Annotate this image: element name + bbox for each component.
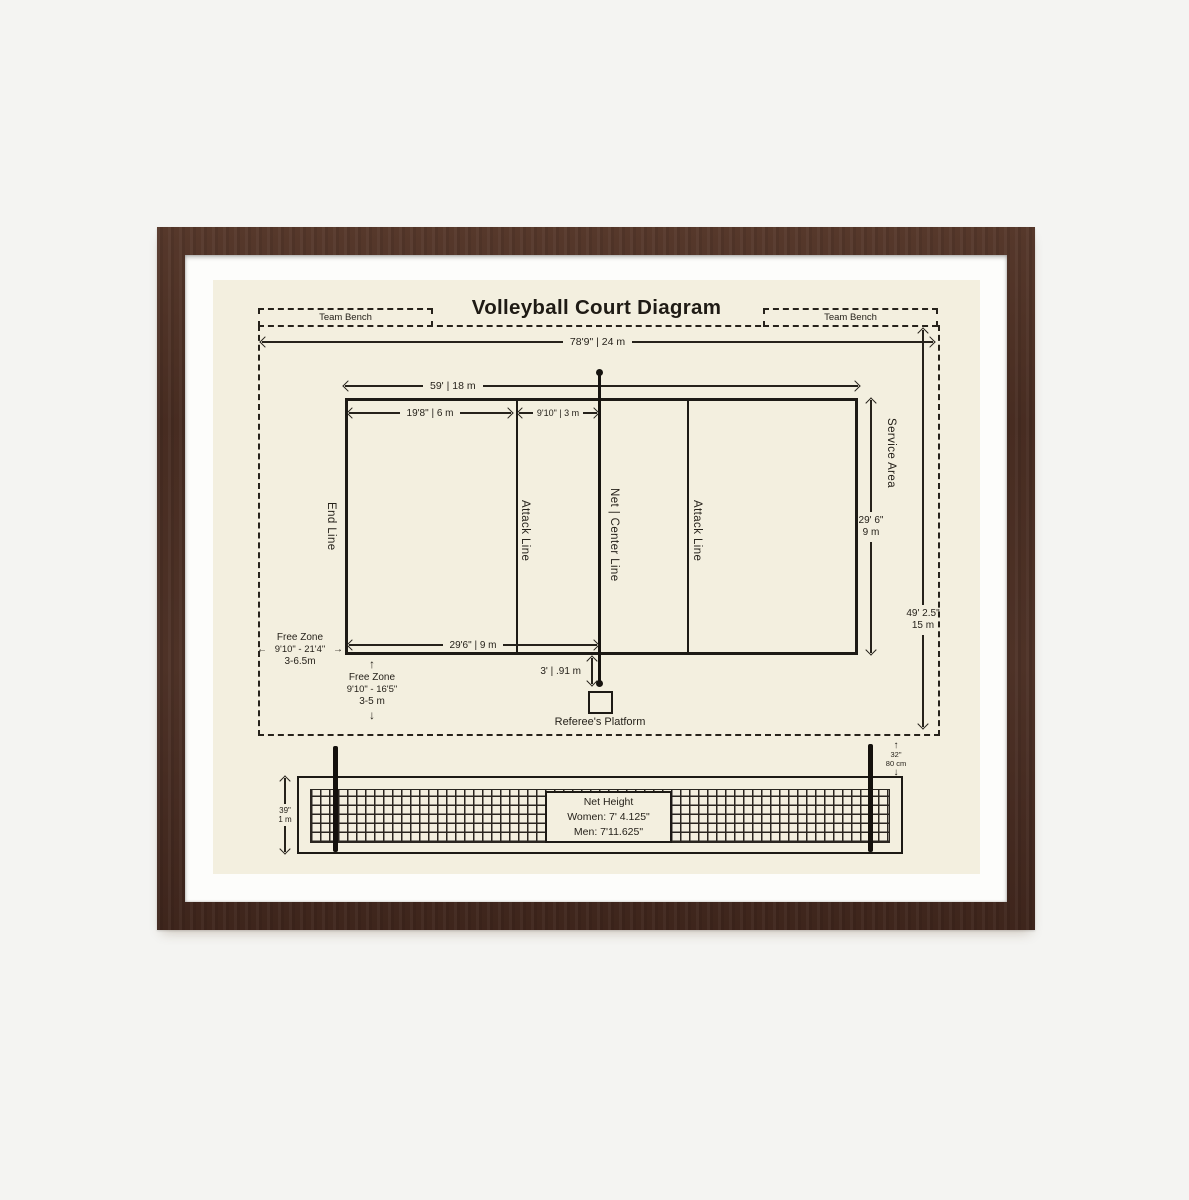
dim-court-width: 29' 6" 9 m (854, 400, 888, 653)
end-line-label: End Line (325, 502, 337, 551)
picture-frame: Volleyball Court Diagram Team Bench Team… (157, 227, 1035, 930)
arrow-down-icon: ↓ (875, 768, 917, 777)
dim-front-zone-label: 9'10" | 3 m (533, 408, 583, 418)
dim-line (483, 385, 858, 386)
net-height-men: Men: 7'11.625" (547, 825, 670, 840)
dim-attack-zone: 19'8" | 6 m (349, 407, 511, 419)
attack-line-right (687, 401, 689, 652)
free-zone-side-note: Free Zone ← 9'10" - 21'4" → 3-6.5m (257, 632, 343, 668)
dim-attack-zone-label: 19'8" | 6 m (400, 408, 461, 419)
net-center-line-label: Net | Center Line (608, 488, 620, 582)
dim-line (591, 658, 592, 684)
dim-court-width-ft: 29' 6" (859, 515, 884, 526)
net-pole-left (333, 746, 338, 852)
dim-court-width-label: 29' 6" 9 m (859, 512, 884, 542)
dim-line (284, 778, 285, 804)
referee-platform-square (588, 691, 613, 714)
net-pole-right (868, 744, 873, 852)
team-bench-right-label: Team Bench (824, 312, 877, 323)
dim-court-length: 59' | 18 m (345, 380, 858, 392)
dim-line (349, 644, 443, 645)
free-zone-end-title: Free Zone (332, 672, 412, 684)
court-outline (345, 398, 858, 655)
net-band-width-in: 32" (875, 750, 917, 759)
arrow-right-icon: → (333, 645, 343, 655)
dim-line (519, 412, 533, 413)
dim-half-court: 29'6" | 9 m (349, 639, 597, 651)
poster: Volleyball Court Diagram Team Bench Team… (213, 280, 980, 874)
referee-platform-label: Referee's Platform (512, 716, 688, 728)
dim-overall-length: 78'9" | 24 m (262, 336, 933, 348)
dim-line (262, 341, 563, 342)
arrow-up-icon: ↑ (875, 741, 917, 750)
dim-total-width-ft: 49' 2.5" (906, 608, 939, 619)
dim-line (922, 635, 923, 727)
team-bench-left-label: Team Bench (319, 312, 372, 323)
attack-line-left-label: Attack Line (519, 500, 531, 561)
net-height-title: Net Height (547, 795, 670, 810)
dim-platform-offset (587, 658, 597, 684)
dim-total-width: 49' 2.5" 15 m (906, 330, 940, 727)
dim-line (503, 644, 597, 645)
team-bench-right: Team Bench (763, 308, 938, 327)
dim-line (632, 341, 933, 342)
dim-line (583, 412, 597, 413)
dim-total-width-m: 15 m (912, 620, 934, 631)
team-bench-left: Team Bench (258, 308, 433, 327)
dim-net-post-height-label: 39" 1 m (278, 804, 291, 826)
dim-half-court-label: 29'6" | 9 m (443, 640, 504, 651)
dim-net-band-width: ↑ 32" 80 cm ↓ (875, 741, 917, 777)
arrow-left-icon: ← (257, 645, 267, 655)
dim-front-zone: 9'10" | 3 m (519, 407, 597, 419)
dim-total-width-label: 49' 2.5" 15 m (906, 605, 939, 635)
dim-line (345, 385, 423, 386)
attack-line-right-label: Attack Line (691, 500, 703, 561)
arrow-up-icon: ↑ (332, 657, 412, 672)
attack-line-left (516, 401, 518, 652)
dim-line (349, 412, 400, 413)
net-center-line (598, 372, 601, 684)
free-zone-end-metric: 3-5 m (332, 696, 412, 708)
free-zone-end-note: ↑ Free Zone 9'10" - 16'5" 3-5 m ↓ (332, 657, 412, 723)
free-zone-side-title: Free Zone (257, 632, 343, 644)
arrow-down-icon: ↓ (332, 708, 412, 723)
free-zone-side-metric: 3-6.5m (257, 656, 343, 668)
free-zone-end-range: 9'10" - 16'5" (332, 684, 412, 696)
net-post-height-m: 1 m (278, 815, 291, 824)
dim-platform-offset-label: 3' | .91 m (509, 666, 581, 678)
net-height-women: Women: 7' 4.125" (547, 810, 670, 825)
net-height-box: Net Height Women: 7' 4.125" Men: 7'11.62… (545, 791, 672, 843)
dim-overall-length-label: 78'9" | 24 m (563, 336, 632, 348)
dim-line (870, 542, 871, 654)
free-zone-side-range: ← 9'10" - 21'4" → (257, 644, 343, 656)
dim-line (922, 330, 923, 605)
dim-court-width-m: 9 m (863, 527, 880, 538)
dim-court-length-label: 59' | 18 m (423, 380, 483, 392)
free-zone-side-range-text: 9'10" - 21'4" (275, 644, 326, 656)
dim-line (870, 400, 871, 512)
net-post-height-in: 39" (279, 806, 291, 815)
mat-border: Volleyball Court Diagram Team Bench Team… (185, 255, 1007, 902)
dim-line (284, 826, 285, 852)
dim-line (460, 412, 511, 413)
